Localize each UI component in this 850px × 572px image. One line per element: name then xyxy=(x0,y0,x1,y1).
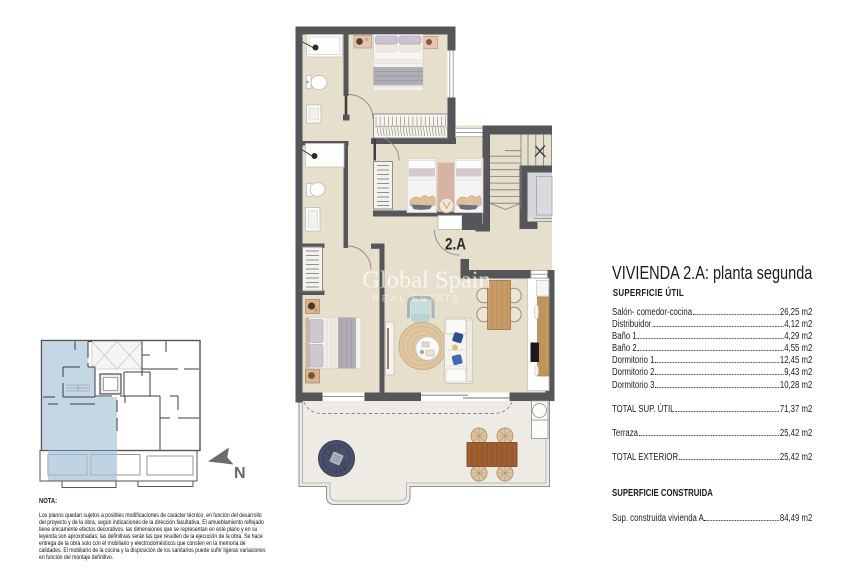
svg-text:2.A: 2.A xyxy=(445,235,466,254)
svg-text:N: N xyxy=(234,465,246,482)
svg-text:REAL ESTATE: REAL ESTATE xyxy=(372,294,461,305)
svg-text:Global Spain: Global Spain xyxy=(362,267,491,294)
